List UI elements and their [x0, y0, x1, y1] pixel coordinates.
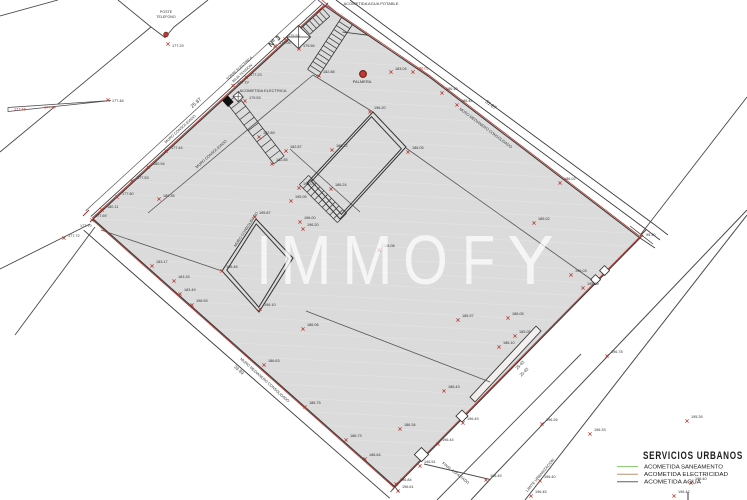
- svg-text:186.44: 186.44: [461, 99, 473, 103]
- svg-text:177.05: 177.05: [279, 41, 291, 45]
- svg-text:179.56: 179.56: [303, 44, 315, 48]
- svg-text:177.53: 177.53: [137, 176, 149, 180]
- svg-text:183.33: 183.33: [178, 275, 190, 279]
- svg-text:177.80: 177.80: [122, 192, 134, 196]
- svg-text:186.75: 186.75: [309, 401, 321, 405]
- svg-text:195.87: 195.87: [259, 211, 271, 215]
- svg-text:ACOMETIDA ELECTRICIDAD: ACOMETIDA ELECTRICIDAD: [644, 472, 728, 478]
- svg-text:195.05: 195.05: [295, 195, 307, 199]
- svg-text:177.49: 177.49: [44, 106, 56, 110]
- svg-text:186.43: 186.43: [448, 385, 460, 389]
- svg-text:186.10: 186.10: [503, 341, 515, 345]
- svg-text:186.40: 186.40: [446, 87, 458, 91]
- svg-text:196.26: 196.26: [546, 418, 558, 422]
- svg-text:186.05: 186.05: [512, 312, 524, 316]
- svg-text:177.69: 177.69: [95, 214, 107, 218]
- svg-text:177.23: 177.23: [250, 73, 262, 77]
- svg-text:183.17: 183.17: [156, 260, 168, 264]
- svg-text:196.78: 196.78: [611, 350, 623, 354]
- svg-text:180.94: 180.94: [153, 162, 165, 166]
- svg-text:177.72: 177.72: [68, 234, 80, 238]
- svg-text:177.19: 177.19: [237, 81, 249, 85]
- svg-text:179.53: 179.53: [249, 96, 261, 100]
- svg-text:PALMERA: PALMERA: [353, 79, 372, 84]
- svg-text:186.24: 186.24: [335, 183, 347, 187]
- svg-text:196.40: 196.40: [544, 475, 556, 479]
- svg-text:196.61: 196.61: [402, 485, 414, 489]
- svg-text:ACOMETIDA AGUA POTABLE: ACOMETIDA AGUA POTABLE: [344, 1, 399, 6]
- svg-text:183.04: 183.04: [395, 67, 407, 71]
- svg-text:186.63: 186.63: [268, 359, 280, 363]
- svg-text:186.06: 186.06: [307, 323, 319, 327]
- svg-text:196.20: 196.20: [374, 106, 386, 110]
- svg-text:183.49: 183.49: [184, 288, 196, 292]
- svg-text:180.11: 180.11: [107, 205, 118, 209]
- svg-text:SERVICIOS URBANOS: SERVICIOS URBANOS: [643, 450, 743, 462]
- svg-text:182.89: 182.89: [263, 131, 275, 135]
- svg-text:POSTE: POSTE: [160, 10, 173, 14]
- svg-text:196.33: 196.33: [594, 428, 606, 432]
- svg-text:185.97: 185.97: [462, 314, 474, 318]
- svg-text:186.22: 186.22: [336, 144, 348, 148]
- svg-text:95.30: 95.30: [646, 233, 656, 237]
- svg-text:180.35: 180.35: [163, 194, 175, 198]
- svg-text:196.10: 196.10: [264, 303, 276, 307]
- svg-text:196.53: 196.53: [196, 299, 208, 303]
- svg-text:177.29: 177.29: [172, 44, 184, 48]
- svg-text:179.93: 179.93: [288, 34, 300, 38]
- svg-text:177.46: 177.46: [14, 108, 26, 112]
- svg-text:186.64: 186.64: [369, 453, 381, 457]
- svg-text:196.49: 196.49: [467, 417, 479, 421]
- svg-text:182.88: 182.88: [323, 70, 335, 74]
- svg-text:196.49: 196.49: [490, 474, 502, 478]
- svg-text:M: M: [280, 220, 331, 299]
- svg-text:185.05: 185.05: [519, 330, 531, 334]
- svg-text:195.26: 195.26: [691, 415, 703, 419]
- svg-text:177.48: 177.48: [112, 99, 124, 103]
- svg-text:O: O: [403, 221, 448, 300]
- svg-text:186.05: 186.05: [412, 146, 424, 150]
- svg-text:182.85: 182.85: [276, 158, 288, 162]
- svg-text:196.45: 196.45: [535, 490, 547, 494]
- svg-text:196.46: 196.46: [226, 265, 238, 269]
- svg-text:186.73: 186.73: [350, 434, 362, 438]
- svg-text:M: M: [342, 221, 392, 299]
- svg-text:196.44: 196.44: [442, 438, 454, 442]
- svg-text:186.01: 186.01: [417, 67, 429, 71]
- svg-text:177.70: 177.70: [80, 224, 92, 228]
- svg-text:195.99: 195.99: [587, 282, 599, 286]
- svg-text:TELEFONO: TELEFONO: [156, 15, 176, 19]
- svg-text:F: F: [462, 222, 495, 300]
- svg-text:193.07: 193.07: [303, 182, 315, 186]
- svg-text:196.84: 196.84: [400, 478, 412, 482]
- svg-text:196.03: 196.03: [575, 269, 587, 273]
- svg-text:I: I: [256, 222, 272, 299]
- svg-text:ACOMETIDA SANEAMENTO: ACOMETIDA SANEAMENTO: [644, 464, 723, 470]
- svg-text:186.34: 186.34: [404, 423, 416, 427]
- svg-text:177.44: 177.44: [171, 146, 183, 150]
- svg-text:182.87: 182.87: [290, 145, 302, 149]
- svg-text:ACOMETIDA ELECTRICA: ACOMETIDA ELECTRICA: [239, 88, 286, 93]
- svg-text:186.02: 186.02: [564, 177, 576, 181]
- svg-text:Y: Y: [507, 221, 554, 299]
- svg-text:ACOMETIDA AGUA: ACOMETIDA AGUA: [644, 480, 702, 486]
- svg-text:146.51: 146.51: [424, 460, 436, 464]
